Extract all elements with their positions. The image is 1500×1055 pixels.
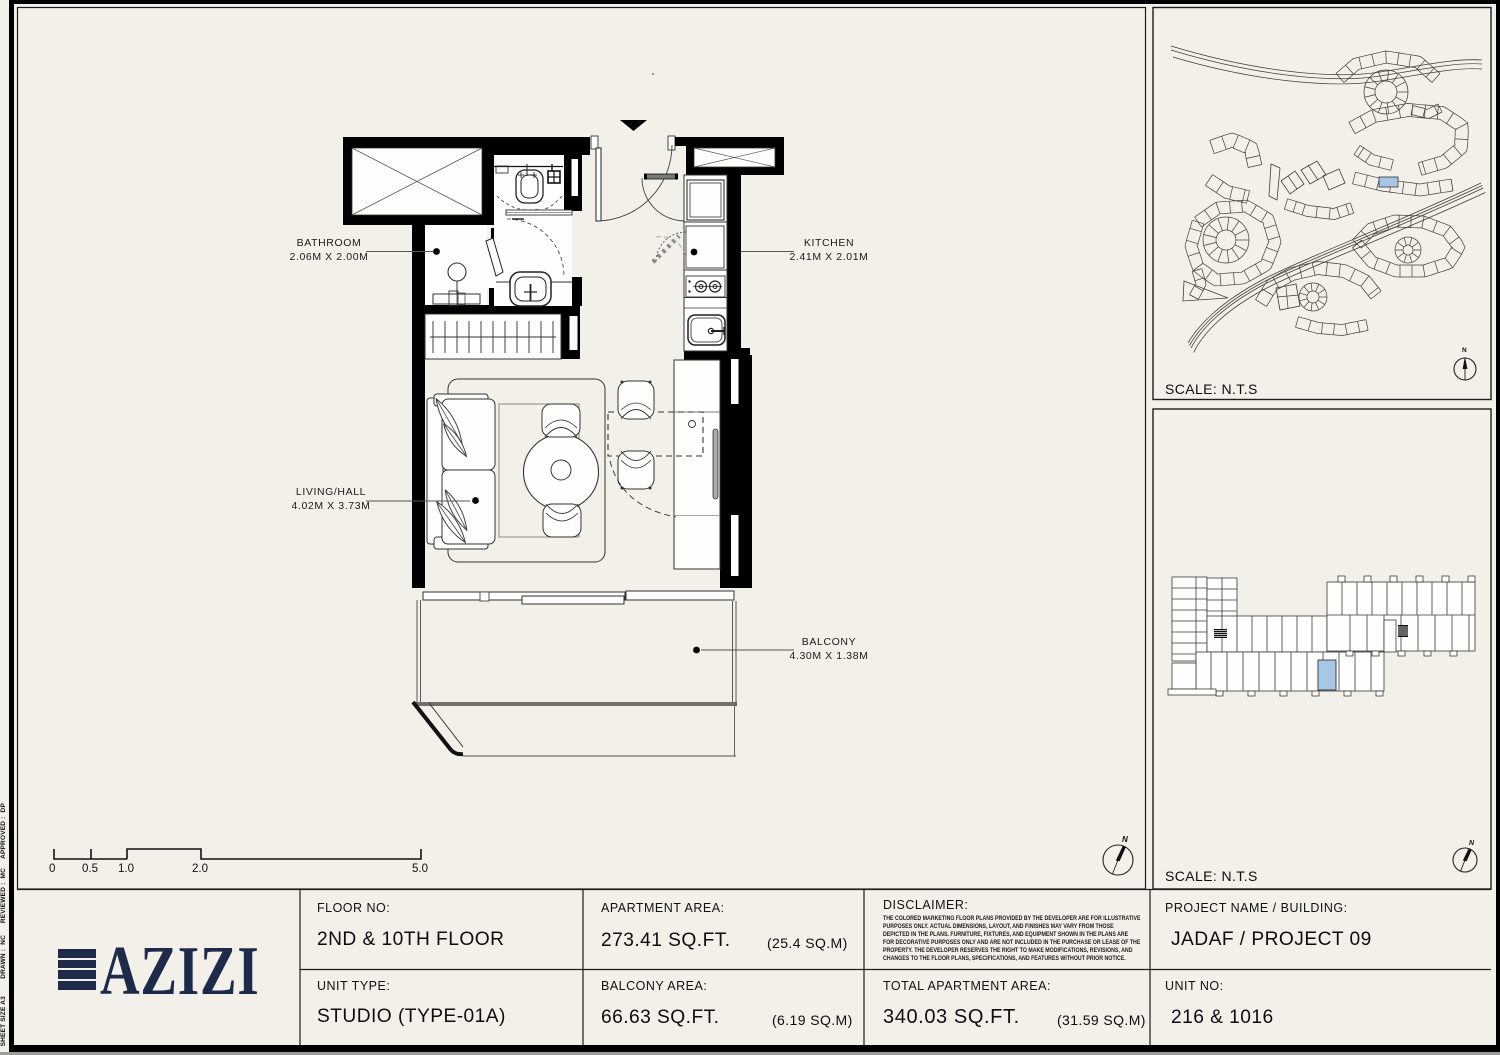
- svg-text:N: N: [1462, 347, 1467, 354]
- svg-text:N: N: [1122, 835, 1128, 844]
